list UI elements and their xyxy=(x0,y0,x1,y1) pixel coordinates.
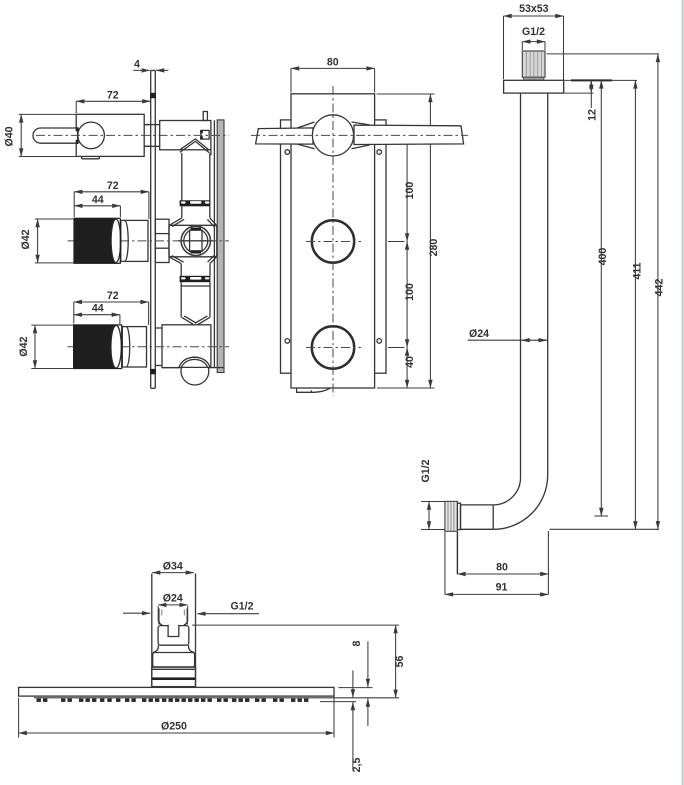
svg-text:G1/2: G1/2 xyxy=(231,600,254,612)
svg-text:80: 80 xyxy=(327,56,339,68)
svg-text:12: 12 xyxy=(587,109,599,121)
svg-text:44: 44 xyxy=(92,194,104,206)
svg-text:Ø34: Ø34 xyxy=(163,560,183,572)
svg-text:8: 8 xyxy=(351,641,363,647)
svg-text:4: 4 xyxy=(134,59,140,71)
svg-text:40: 40 xyxy=(404,356,416,368)
svg-text:80: 80 xyxy=(496,561,508,573)
svg-text:53x53: 53x53 xyxy=(519,3,549,15)
svg-text:Ø42: Ø42 xyxy=(20,229,32,249)
svg-text:2,5: 2,5 xyxy=(351,758,363,773)
svg-text:400: 400 xyxy=(597,248,609,266)
svg-text:Ø42: Ø42 xyxy=(18,336,30,356)
svg-text:442: 442 xyxy=(654,279,666,297)
svg-text:72: 72 xyxy=(107,290,119,302)
svg-text:56: 56 xyxy=(394,656,406,668)
svg-text:Ø250: Ø250 xyxy=(161,721,187,733)
svg-text:100: 100 xyxy=(404,283,416,301)
svg-text:72: 72 xyxy=(107,89,119,101)
svg-text:G1/2: G1/2 xyxy=(420,459,432,482)
svg-text:72: 72 xyxy=(107,180,119,192)
svg-text:Ø24: Ø24 xyxy=(163,593,183,605)
svg-text:91: 91 xyxy=(496,582,508,594)
svg-text:Ø40: Ø40 xyxy=(3,126,15,146)
svg-text:44: 44 xyxy=(92,303,104,315)
svg-text:100: 100 xyxy=(404,182,416,200)
svg-text:411: 411 xyxy=(631,262,643,279)
svg-text:280: 280 xyxy=(428,239,440,257)
svg-text:Ø24: Ø24 xyxy=(469,328,489,340)
svg-text:G1/2: G1/2 xyxy=(522,26,545,38)
